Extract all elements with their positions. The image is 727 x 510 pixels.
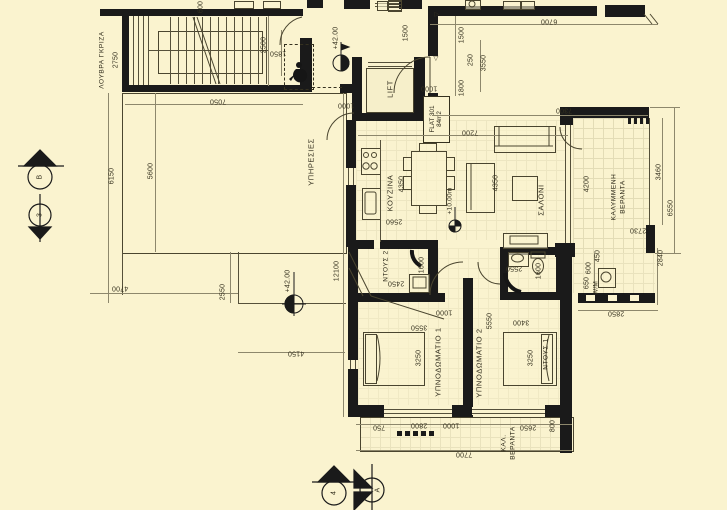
dim-tick [644,14,658,24]
person-icon [296,62,302,68]
balcony-door-arc [560,127,582,149]
dim-label: 6700 [541,18,557,25]
door-arc [430,262,463,295]
burner-icon [372,153,377,158]
dim-label: 650 [584,277,591,289]
room-label-cal-veranda: ΚΑΛ. [501,434,508,451]
bed-cover-line [377,335,380,381]
dim-label: 2550 [506,265,522,272]
dim-label: 3460 [656,164,663,180]
triangle-marker: ▽ [433,54,438,62]
toilet-tank [531,252,545,258]
tv-inner [510,236,538,244]
dim-label: 800 [550,420,557,432]
dim-label: 7200 [462,129,478,136]
dim-label: 2450 [388,280,404,287]
dim-label: 3250 [416,350,423,366]
room-label-shower2: ΝΤΟΥΣ 2 [383,250,390,281]
dim-label: 2750 [113,52,120,68]
section-marker-letter: 4 [331,491,338,495]
dim-label: 2550 [220,284,227,300]
section-marker-letter: B [37,175,44,180]
dim-label: 250 [468,54,475,66]
level-marker-fill [455,220,461,226]
dim-label: 600 [198,1,205,13]
dim-label: 1800 [459,80,466,96]
dim-label: 6150 [109,168,116,184]
dim-label: 5550 [487,313,494,329]
sink-basin [365,192,376,214]
room-label-covered-veranda: ΚΑΛΥΜΜΕΝΗ [611,174,618,221]
wm-label: W/M [593,281,600,295]
dim-label: 2800 [411,422,427,429]
burner-icon [364,153,369,158]
dim-label: 3250 [528,350,535,366]
section-marker-icon [354,470,372,488]
section-marker-icon [29,227,51,239]
level-marker-fill [449,226,455,232]
dim-label: 12100 [334,261,341,281]
door-arc [280,17,302,45]
door-arc [478,262,500,284]
dim-label: 1000 [436,309,452,316]
dim-label: 3550 [481,55,488,71]
door-arc [327,113,354,140]
floor-plan-drawing: FLAT 301 84m2 [0,0,727,510]
dim-label: 1000 [421,85,437,92]
dim-label: 2730 [630,227,646,234]
dim-label: 1600 [536,263,543,279]
person-icon [293,69,307,83]
room-label-bedroom1: ΥΠΝΟΔΩΜΑΤΙΟ 1 [434,327,443,396]
room-label-covered-veranda: ΒΕΡΑΝΤΑ [620,180,627,214]
dim-label: 7300 [556,107,572,114]
burner-icon [371,163,377,169]
section-marker-icon [24,150,56,166]
room-label-living: ΣΑΛΟΝΙ [537,184,546,215]
basin-icon [512,254,524,262]
room-label-cal-veranda: ΒΕΡΑΝΤΑ [510,426,517,460]
door-leaf [505,273,521,292]
dim-label: 1600 [419,257,426,273]
burner-icon [363,163,369,169]
sofa-lines [495,127,553,146]
dim-label: 4350 [493,175,500,191]
section-marker-icon [354,492,372,510]
room-label-louvres: ΛΟΥΒΡΑ ΓΚΡΙΖΑ [99,31,106,89]
dim-label: 4350 [399,176,406,192]
dim-label: 1000 [338,102,354,109]
dim-label: 2840 [658,250,665,266]
section-marker-icon [318,466,350,482]
dim-label: 2650 [520,424,536,431]
wm-drum-icon [601,272,611,282]
dim-label: 3550 [411,324,427,331]
room-label-shower1: ΝΤΟΥΣ 1 [543,338,550,369]
dim-label: 750 [373,424,385,431]
dim-label: 7700 [456,451,472,458]
dim-label: 4700 [112,285,128,292]
dim-label: 600 [586,262,593,274]
room-label-lift: LIFT [386,80,395,98]
level-marker-fill [341,55,349,71]
level-label: +10.00m [447,188,454,215]
section-marker-letter: 3 [37,213,44,217]
dim-label: 4150 [288,350,304,357]
dim-label: 450 [595,250,602,262]
room-label-kitchen: ΚΟΥΖΙΝΑ [386,175,395,212]
dim-label: 4200 [584,176,591,192]
dim-label: 1000 [443,422,459,429]
level-label: +42.00 [285,270,292,293]
dim-label: 2500 [261,37,268,53]
dim-label: 1500 [403,25,410,41]
dim-label: 2560 [386,218,402,225]
dim-label: 3400 [513,319,529,326]
drawing-annotations [0,0,727,510]
dim-label: 2850 [608,310,624,317]
level-label: +42.00 [333,27,340,50]
stair-direction-line [193,17,216,84]
dim-label: 5600 [148,163,155,179]
level-marker-flag [341,44,349,50]
room-label-services: ΥΠΗΡΕΣΙΕΣ [307,138,316,186]
triangle-marker: ▷ [434,10,439,18]
section-marker-letter: A [375,488,382,493]
basin-icon [413,277,426,288]
appliance-knob [469,1,475,7]
dim-label: 1850 [270,50,286,57]
dim-label: 7050 [210,98,226,105]
stair-direction-line [197,17,220,84]
room-label-bedroom2: ΥΠΝΟΔΩΜΑΤΙΟ 2 [475,328,484,397]
dim-label: 1500 [459,27,466,43]
dim-label: 6550 [668,200,675,216]
